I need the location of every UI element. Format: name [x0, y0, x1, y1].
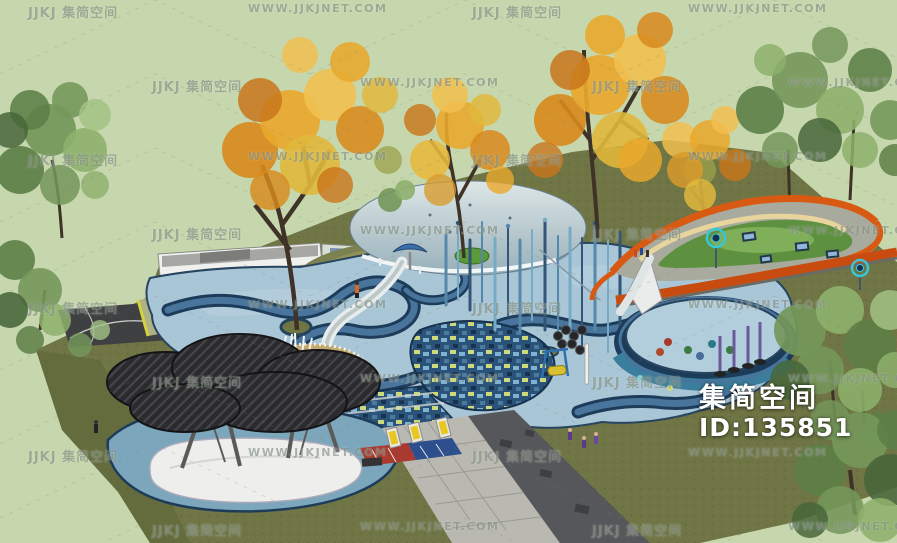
dashed-lattice-overlay: [0, 0, 897, 543]
rendered-scene: JJKJ 集简空间WWW.JJKJNET.COMJJKJ 集简空间WWW.JJK…: [0, 0, 897, 543]
scene-render: [0, 0, 897, 543]
